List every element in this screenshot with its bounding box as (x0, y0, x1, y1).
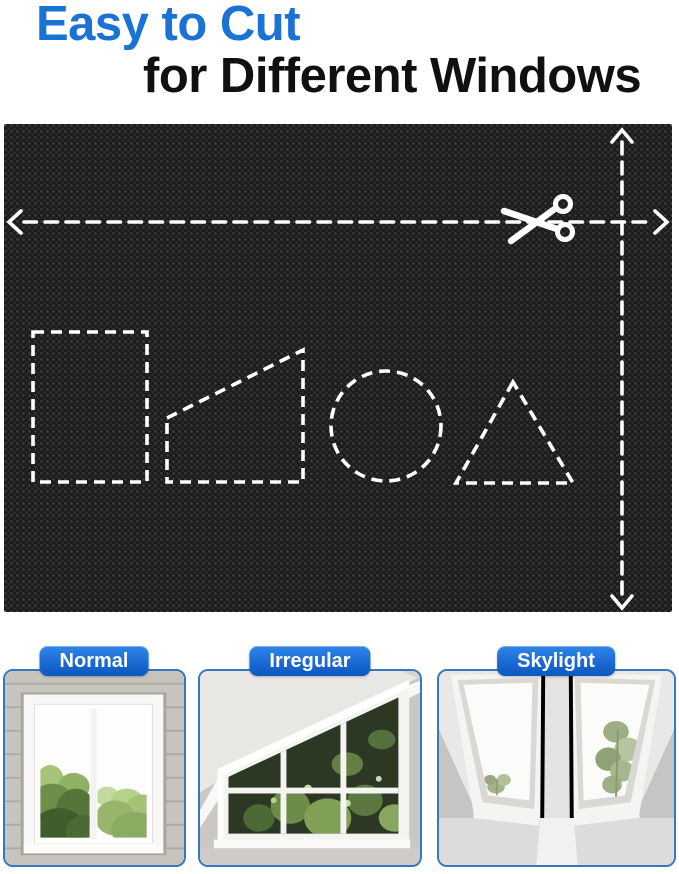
title-line-1: Easy to Cut (36, 0, 300, 53)
window-type-label-normal: Normal (40, 646, 149, 676)
cut-shape-rectangle (33, 332, 147, 482)
skylight-roof-windows-photo (439, 671, 674, 865)
title-line-2: for Different Windows (143, 47, 641, 105)
cut-shape-trapezoid (167, 350, 303, 482)
vertical-cut-line-with-arrows (612, 130, 632, 608)
normal-double-casement-window-photo (5, 671, 184, 865)
cut-lines-overlay (4, 124, 672, 612)
scissors-icon (504, 197, 573, 242)
window-type-label-skylight: Skylight (497, 646, 615, 676)
product-infographic: Easy to Cut for Different Windows (0, 0, 679, 874)
fabric-cut-panel (4, 124, 672, 612)
horizontal-cut-line-with-arrows (9, 211, 667, 233)
cut-shape-triangle (456, 382, 573, 483)
window-type-card-skylight (437, 669, 676, 867)
window-type-card-irregular (198, 669, 422, 867)
cut-shape-circle (331, 371, 441, 481)
window-type-label-irregular: Irregular (249, 646, 370, 676)
window-type-card-normal (3, 669, 186, 867)
irregular-slanted-attic-window-photo (200, 671, 420, 865)
